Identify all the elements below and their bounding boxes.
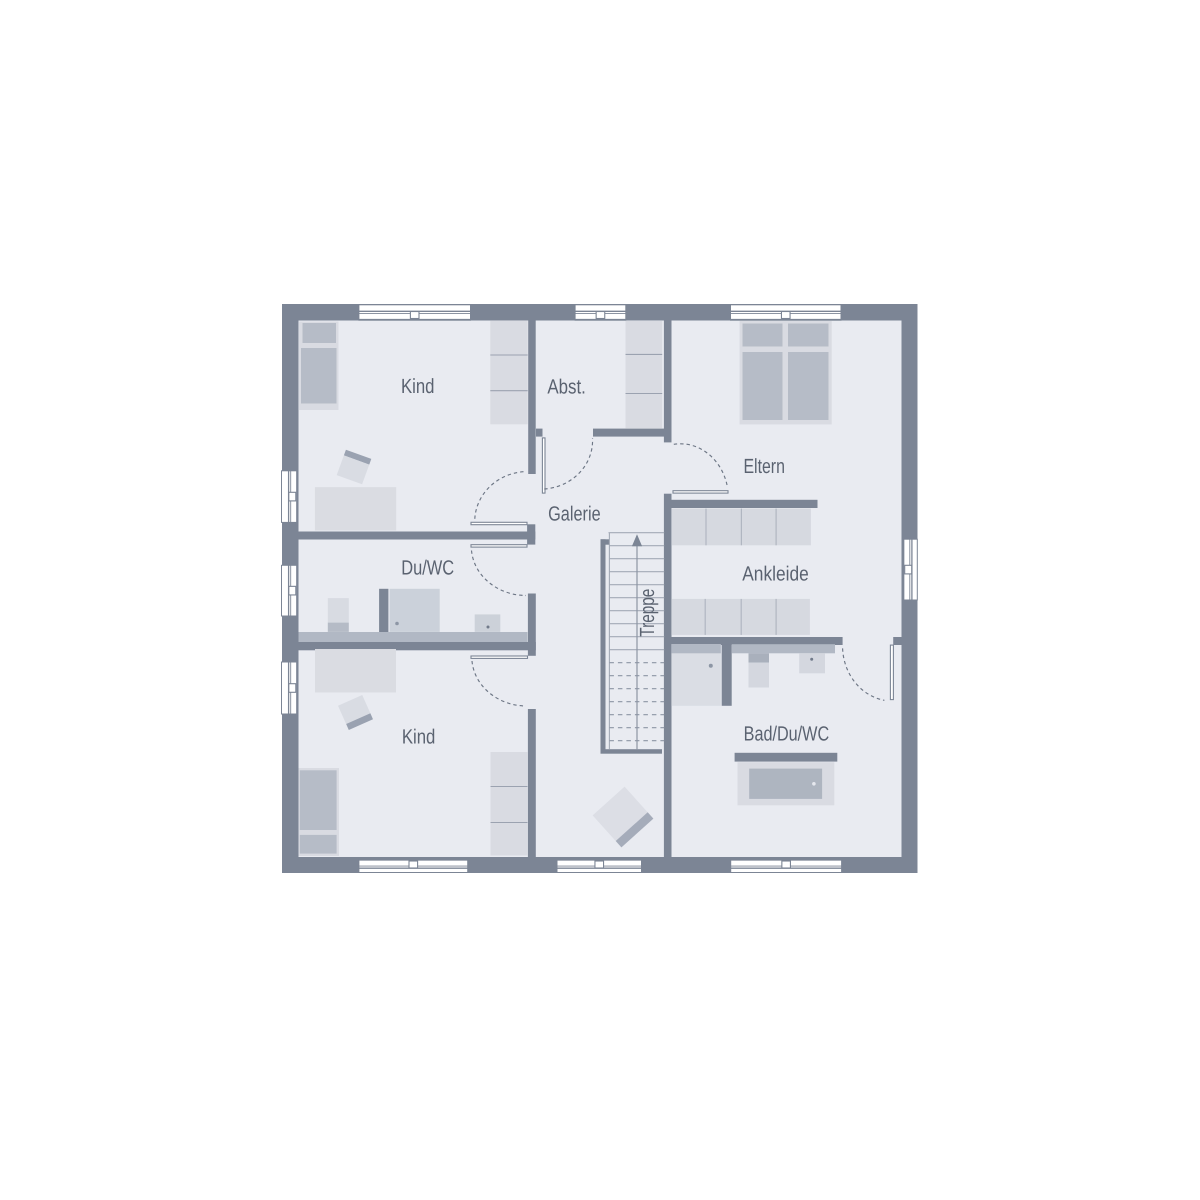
svg-text:Galerie: Galerie xyxy=(548,503,601,526)
svg-text:Du/WC: Du/WC xyxy=(401,556,454,579)
svg-text:Bad/Du/WC: Bad/Du/WC xyxy=(744,722,830,745)
svg-text:Ankleide: Ankleide xyxy=(742,563,809,586)
svg-text:Abst.: Abst. xyxy=(547,376,586,399)
svg-text:Treppe: Treppe xyxy=(636,589,659,637)
svg-text:Kind: Kind xyxy=(401,375,435,398)
svg-text:Eltern: Eltern xyxy=(743,455,785,478)
svg-text:Kind: Kind xyxy=(402,726,436,749)
